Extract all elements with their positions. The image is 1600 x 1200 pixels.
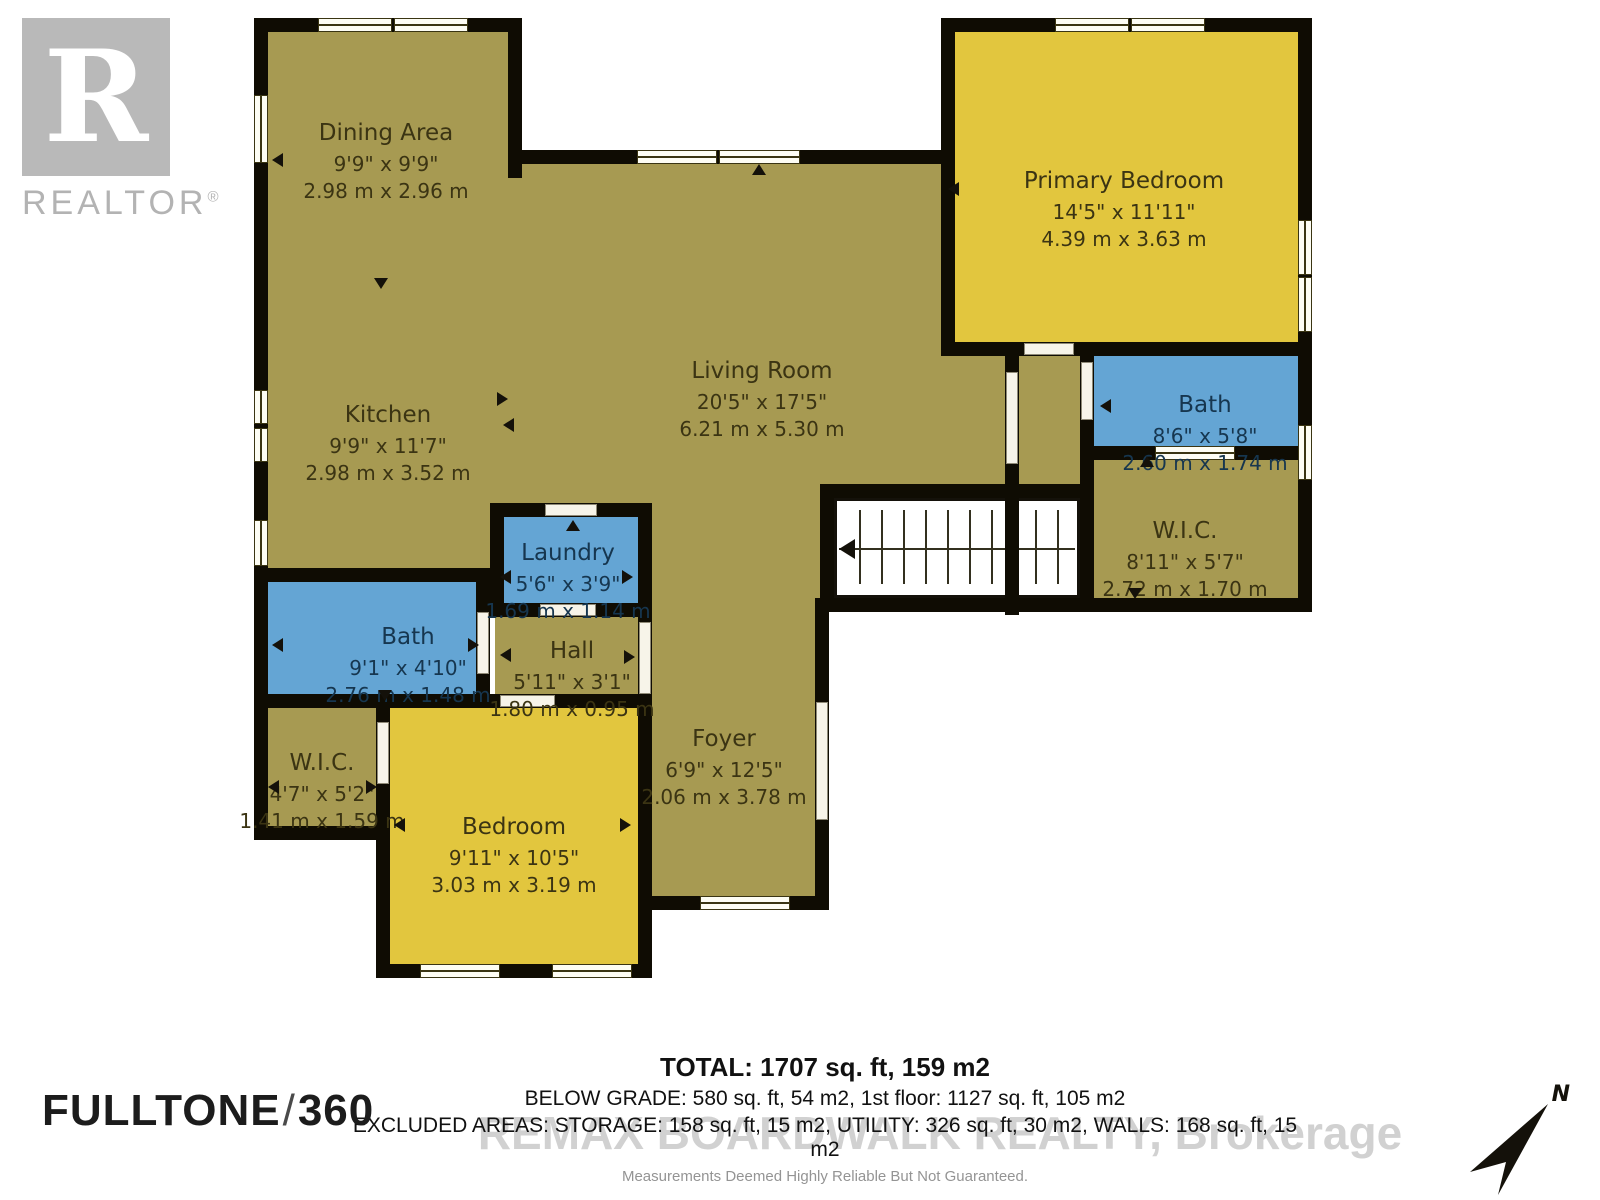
door-arrow-icon — [620, 818, 631, 832]
label-kitchen: Kitchen 9'9" x 11'7" 2.98 m x 3.52 m — [305, 400, 470, 486]
wall — [376, 826, 390, 978]
window — [420, 964, 500, 978]
area-summary: TOTAL: 1707 sq. ft, 159 m2 BELOW GRADE: … — [350, 1052, 1300, 1185]
floor-plan-page: R REALTOR® Dining Area 9'9" x 9'9" 2.98 … — [0, 0, 1600, 1200]
window — [1298, 277, 1312, 332]
window — [394, 18, 468, 32]
fulltone-name: FULLTONE — [42, 1086, 281, 1135]
room-name: Laundry — [485, 538, 650, 568]
door-arrow-icon — [272, 153, 283, 167]
room-name: Foyer — [641, 724, 806, 754]
room-dims-imperial: 9'9" x 11'7" — [305, 433, 470, 459]
window — [1055, 18, 1129, 32]
window — [254, 95, 268, 163]
fulltone-number: 360 — [298, 1086, 374, 1135]
realtor-logo-box: R — [22, 18, 170, 176]
room-dims-metric: 3.03 m x 3.19 m — [431, 872, 596, 898]
door-arrow-icon — [500, 648, 511, 662]
window — [1298, 220, 1312, 275]
realtor-wordmark: REALTOR® — [22, 184, 223, 223]
door-arrow-icon — [1100, 399, 1111, 413]
disclaimer: Measurements Deemed Highly Reliable But … — [350, 1168, 1300, 1185]
room-dims-metric: 1.69 m x 1.14 m — [485, 598, 650, 624]
room-dims-imperial: 9'9" x 9'9" — [303, 151, 468, 177]
realtor-word: REALTOR — [22, 184, 207, 222]
room-name: Primary Bedroom — [1024, 166, 1224, 196]
label-primary-bedroom: Primary Bedroom 14'5" x 11'11" 4.39 m x … — [1024, 166, 1224, 252]
room-dims-metric: 6.21 m x 5.30 m — [679, 416, 844, 442]
room-name: Bedroom — [431, 812, 596, 842]
realtor-r-icon: R — [44, 34, 149, 160]
window — [637, 150, 717, 164]
room-name: Living Room — [679, 356, 844, 386]
window — [1131, 18, 1205, 32]
room-dims-imperial: 14'5" x 11'11" — [1024, 199, 1224, 225]
window — [719, 150, 800, 164]
room-dims-imperial: 8'6" x 5'8" — [1122, 423, 1287, 449]
room-dims-metric: 2.98 m x 3.52 m — [305, 460, 470, 486]
below-grade-area: BELOW GRADE: 580 sq. ft, 54 m2, 1st floo… — [350, 1087, 1300, 1111]
room-name: Kitchen — [305, 400, 470, 430]
door-arrow-icon — [624, 650, 635, 664]
room-dims-imperial: 4'7" x 5'2" — [239, 781, 404, 807]
room-dims-imperial: 6'9" x 12'5" — [641, 757, 806, 783]
room-dims-imperial: 9'1" x 4'10" — [325, 655, 490, 681]
wall — [820, 484, 834, 612]
room-name: Dining Area — [303, 118, 468, 148]
room-dims-metric: 2.98 m x 2.96 m — [303, 178, 468, 204]
door-arrow-icon — [1128, 588, 1142, 599]
corridor-floor — [1018, 350, 1080, 484]
label-hall: Hall 5'11" x 3'1" 1.80 m x 0.95 m — [489, 636, 654, 722]
room-dims-imperial: 20'5" x 17'5" — [679, 389, 844, 415]
window — [1298, 425, 1312, 480]
wall — [820, 484, 1080, 498]
room-name: W.I.C. — [239, 748, 404, 778]
door-arrow-icon — [468, 638, 479, 652]
label-bedroom: Bedroom 9'11" x 10'5" 3.03 m x 3.19 m — [431, 812, 596, 898]
door-arrow-icon — [378, 690, 392, 701]
door-arrow-icon — [566, 520, 580, 531]
window — [254, 390, 268, 424]
label-wic-left: W.I.C. 4'7" x 5'2" 1.41 m x 1.59 m — [239, 748, 404, 834]
registered-mark: ® — [207, 189, 222, 206]
living-room-floor-right — [845, 356, 1005, 484]
door-arrow-icon — [1140, 456, 1154, 467]
fulltone-360-logo: FULLTONE/360 — [42, 1086, 374, 1136]
door-opening — [1024, 343, 1074, 355]
room-dims-metric: 2.76 m x 1.48 m — [325, 682, 490, 708]
label-dining-area: Dining Area 9'9" x 9'9" 2.98 m x 2.96 m — [303, 118, 468, 204]
total-area: TOTAL: 1707 sq. ft, 159 m2 — [350, 1052, 1300, 1083]
door-opening — [1081, 362, 1093, 420]
door-arrow-icon — [752, 164, 766, 175]
front-door — [816, 702, 828, 820]
door-arrow-icon — [394, 818, 405, 832]
room-name: Bath — [1122, 390, 1287, 420]
room-name: Bath — [325, 622, 490, 652]
living-room-floor-upper — [508, 164, 941, 356]
stair-direction-arrow-icon — [839, 539, 855, 559]
excluded-areas: EXCLUDED AREAS: STORAGE: 158 sq. ft, 15 … — [350, 1114, 1300, 1162]
label-living-room: Living Room 20'5" x 17'5" 6.21 m x 5.30 … — [679, 356, 844, 442]
window — [552, 964, 632, 978]
window — [254, 428, 268, 462]
door-arrow-icon — [268, 780, 279, 794]
door-opening — [545, 504, 597, 516]
window — [254, 520, 268, 566]
door-arrow-icon — [366, 780, 377, 794]
stair-treads — [839, 510, 1075, 584]
room-dims-metric: 4.39 m x 3.63 m — [1024, 226, 1224, 252]
room-dims-metric: 2.06 m x 3.78 m — [641, 784, 806, 810]
room-dims-metric: 1.41 m x 1.59 m — [239, 808, 404, 834]
door-arrow-icon — [497, 392, 508, 406]
room-name: W.I.C. — [1102, 516, 1267, 546]
door-arrow-icon — [272, 638, 283, 652]
room-dims-imperial: 5'11" x 3'1" — [489, 669, 654, 695]
door-arrow-icon — [622, 570, 633, 584]
fulltone-slash: / — [281, 1086, 298, 1135]
door-arrow-icon — [374, 278, 388, 289]
door-arrow-icon — [503, 418, 514, 432]
room-dims-imperial: 9'11" x 10'5" — [431, 845, 596, 871]
staircase — [834, 498, 1080, 598]
door-arrow-icon — [948, 182, 959, 196]
window — [318, 18, 392, 32]
room-dims-metric: 1.80 m x 0.95 m — [489, 696, 654, 722]
label-foyer: Foyer 6'9" x 12'5" 2.06 m x 3.78 m — [641, 724, 806, 810]
door-opening — [1006, 372, 1018, 464]
room-dims-imperial: 8'11" x 5'7" — [1102, 549, 1267, 575]
label-bath-left: Bath 9'1" x 4'10" 2.76 m x 1.48 m — [325, 622, 490, 708]
wall — [941, 342, 1312, 356]
dining-kitchen-floor — [268, 32, 508, 582]
north-arrow-icon: N — [1452, 1082, 1582, 1197]
stair-center-line — [839, 548, 1075, 550]
window — [700, 896, 790, 910]
north-label: N — [1552, 1082, 1570, 1107]
realtor-logo: R REALTOR® — [22, 18, 223, 223]
wall — [254, 568, 497, 582]
door-arrow-icon — [500, 570, 511, 584]
